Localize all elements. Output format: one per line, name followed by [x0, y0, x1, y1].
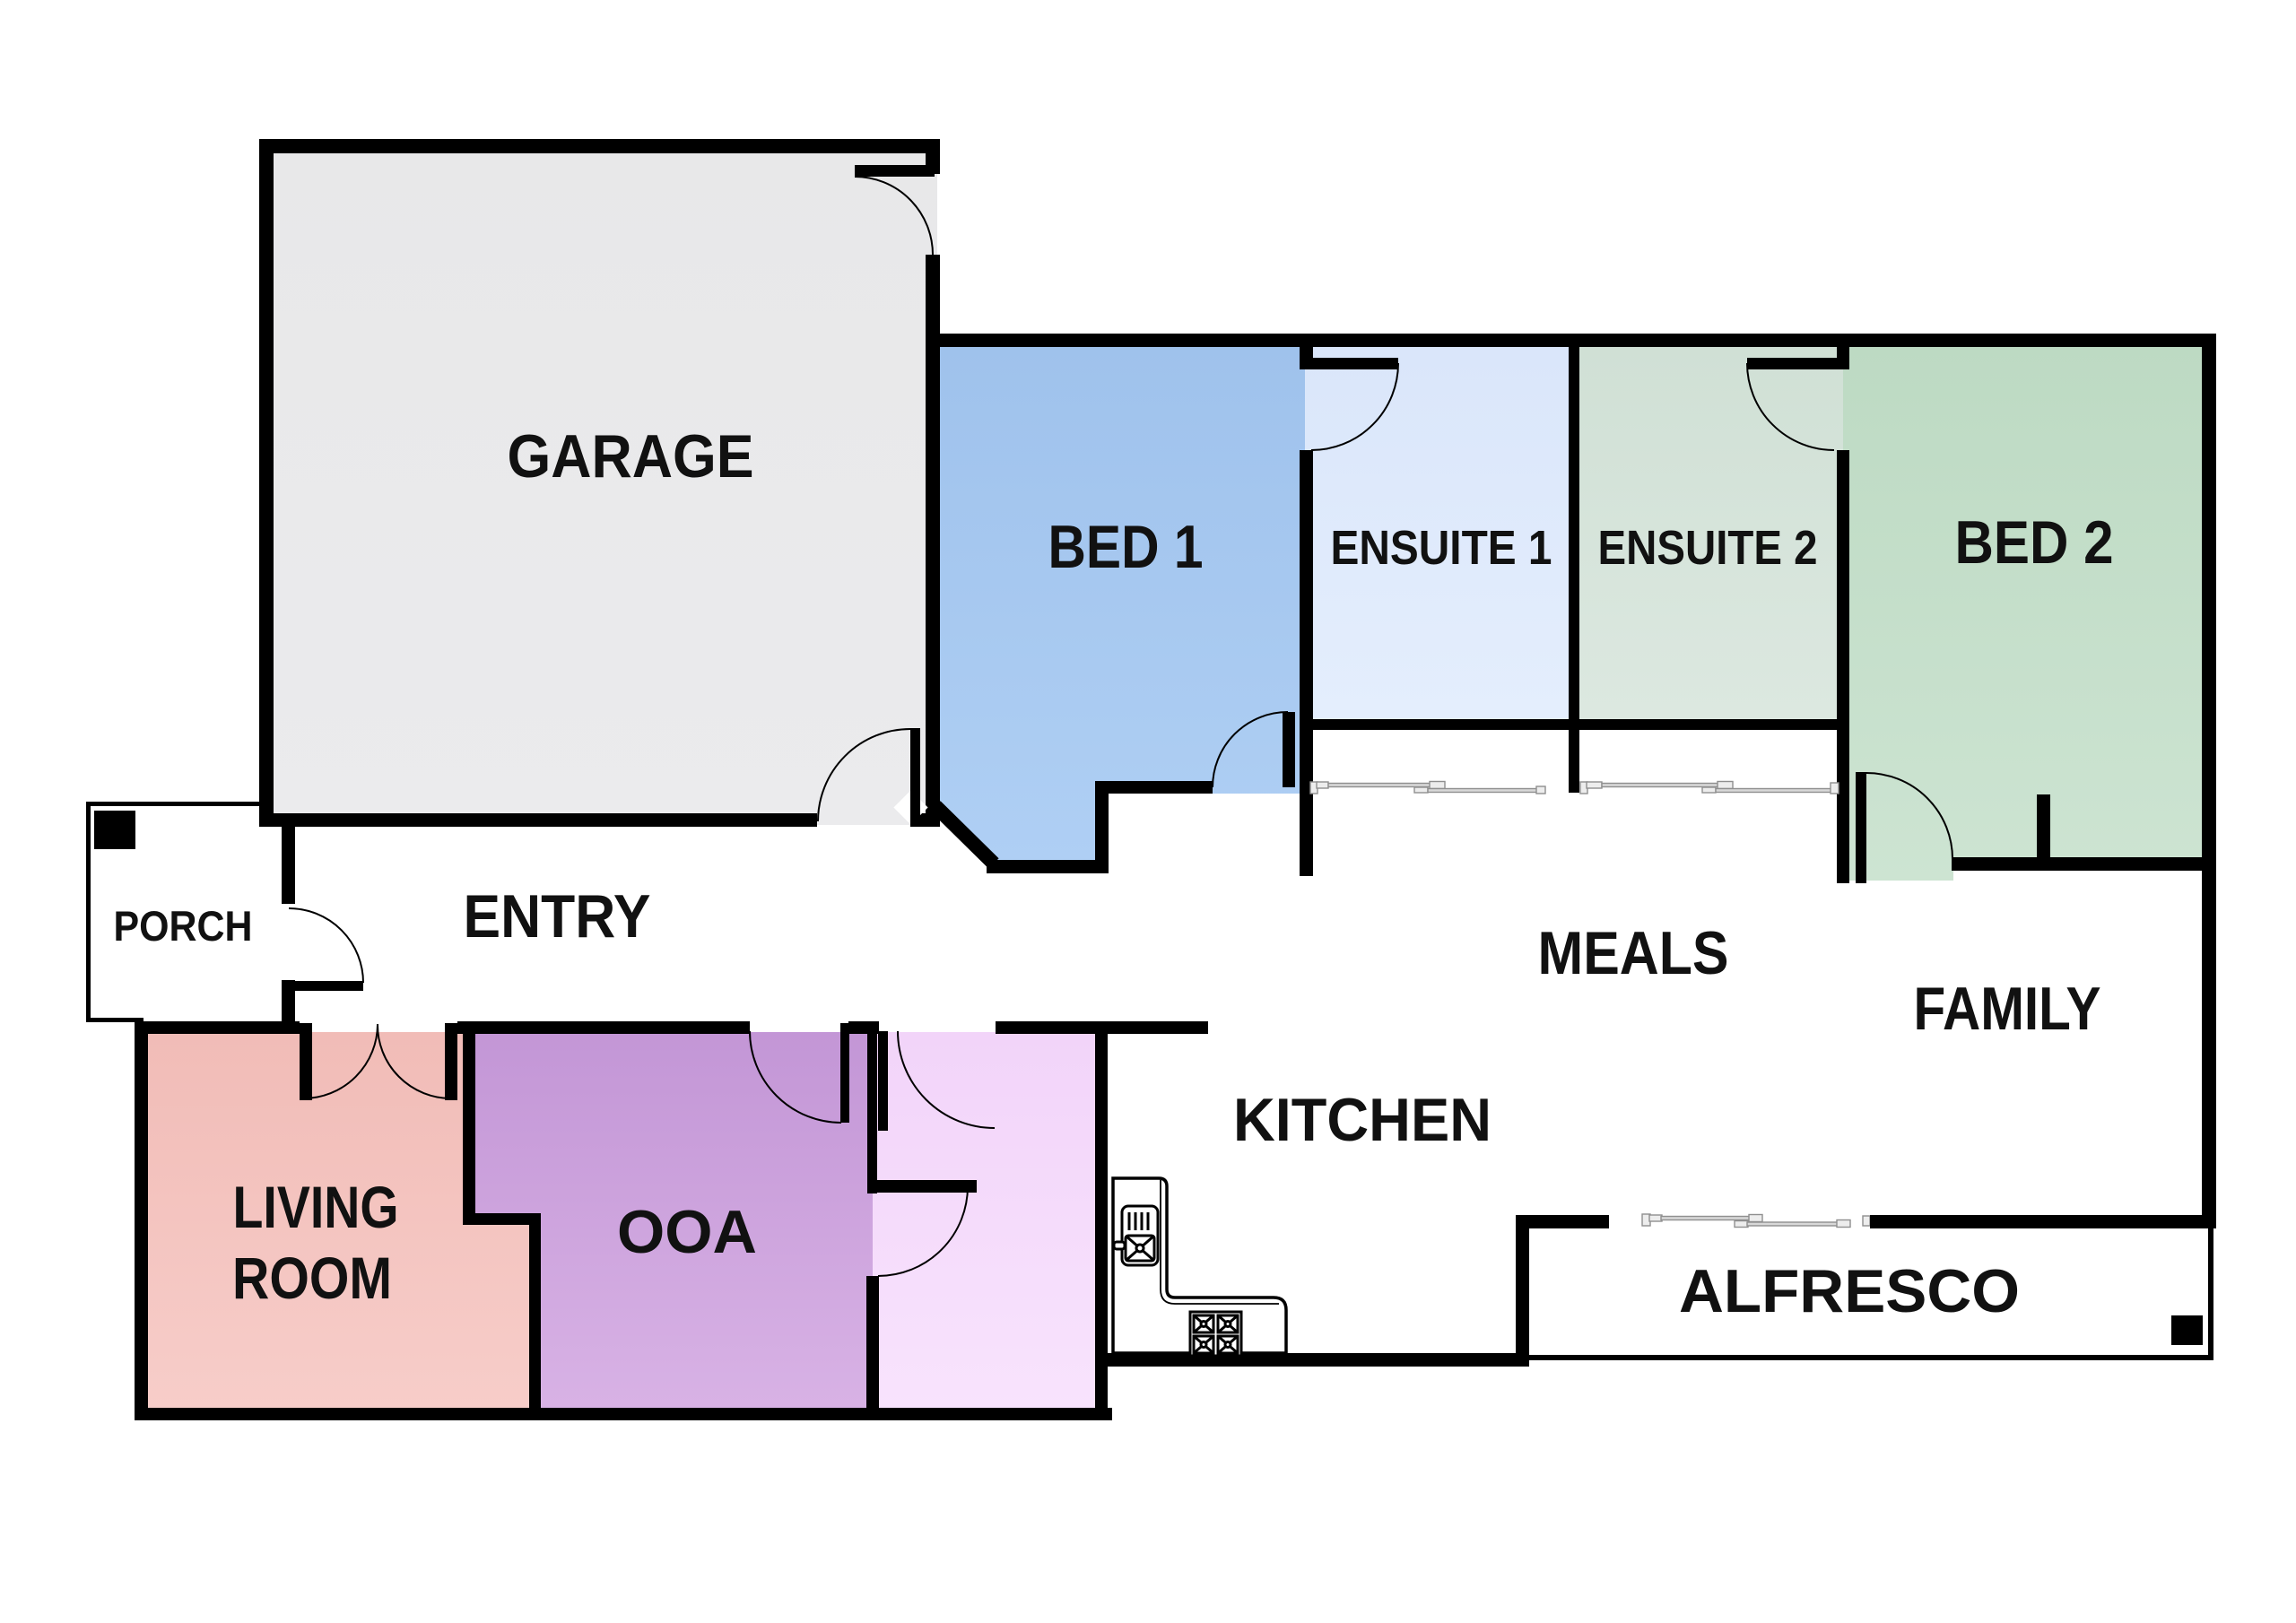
svg-text:OOA: OOA: [617, 1198, 757, 1266]
svg-text:BED 1: BED 1: [1048, 513, 1204, 581]
svg-text:KITCHEN: KITCHEN: [1233, 1086, 1492, 1154]
svg-text:ALFRESCO: ALFRESCO: [1679, 1257, 2020, 1325]
svg-text:BED 2: BED 2: [1955, 508, 2114, 577]
svg-text:PORCH: PORCH: [114, 902, 253, 950]
svg-text:ENTRY: ENTRY: [464, 882, 651, 950]
svg-text:FAMILY: FAMILY: [1914, 975, 2101, 1043]
svg-text:ROOM: ROOM: [232, 1245, 392, 1311]
svg-text:ENSUITE 1: ENSUITE 1: [1331, 521, 1552, 575]
svg-text:LIVING: LIVING: [233, 1174, 399, 1240]
svg-text:MEALS: MEALS: [1538, 919, 1729, 987]
svg-text:ENSUITE 2: ENSUITE 2: [1598, 521, 1818, 575]
svg-text:GARAGE: GARAGE: [508, 422, 754, 490]
